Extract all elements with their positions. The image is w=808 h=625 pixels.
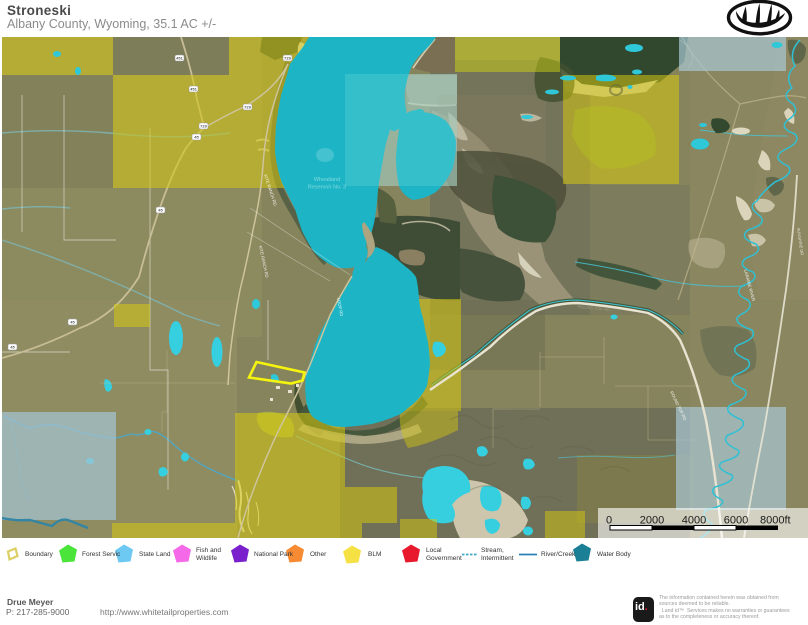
svg-text:45: 45: [194, 135, 199, 140]
svg-text:451: 451: [190, 87, 197, 92]
svg-text:729: 729: [284, 56, 291, 61]
svg-text:45: 45: [10, 345, 15, 350]
svg-text:45: 45: [70, 320, 75, 325]
svg-text:451: 451: [176, 56, 183, 61]
svg-text:729: 729: [200, 124, 207, 129]
svg-text:729: 729: [244, 105, 251, 110]
svg-text:0: 0: [606, 515, 612, 527]
svg-text:8000ft: 8000ft: [760, 515, 791, 527]
svg-text:Reservoir No. 3: Reservoir No. 3: [308, 185, 346, 191]
svg-text:45: 45: [158, 208, 163, 213]
svg-text:Wheatland: Wheatland: [314, 177, 340, 183]
svg-text:6000: 6000: [724, 515, 748, 527]
svg-text:4000: 4000: [682, 515, 706, 527]
svg-text:2000: 2000: [640, 515, 664, 527]
